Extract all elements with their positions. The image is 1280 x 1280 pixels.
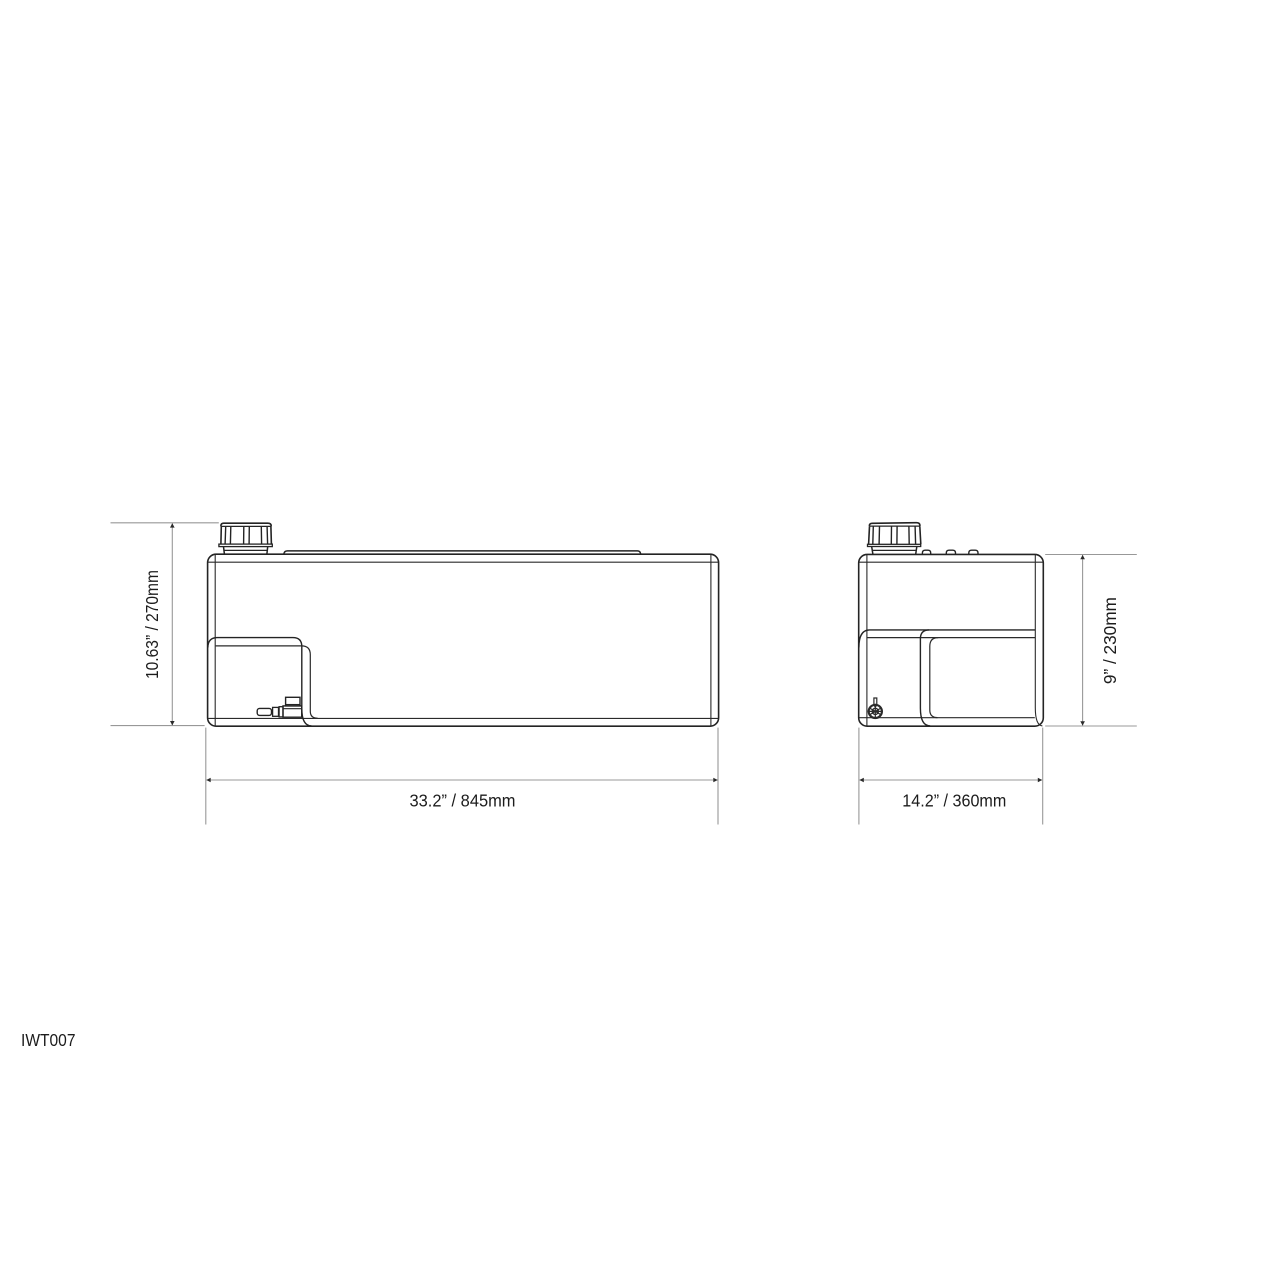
svg-text:33.2” / 845mm: 33.2” / 845mm	[410, 790, 516, 810]
svg-text:14.2” / 360mm: 14.2” / 360mm	[902, 790, 1006, 810]
svg-text:IWT007: IWT007	[21, 1030, 76, 1050]
svg-text:10.63” / 270mm: 10.63” / 270mm	[142, 570, 162, 679]
svg-text:9” / 230mm: 9” / 230mm	[1100, 597, 1120, 684]
